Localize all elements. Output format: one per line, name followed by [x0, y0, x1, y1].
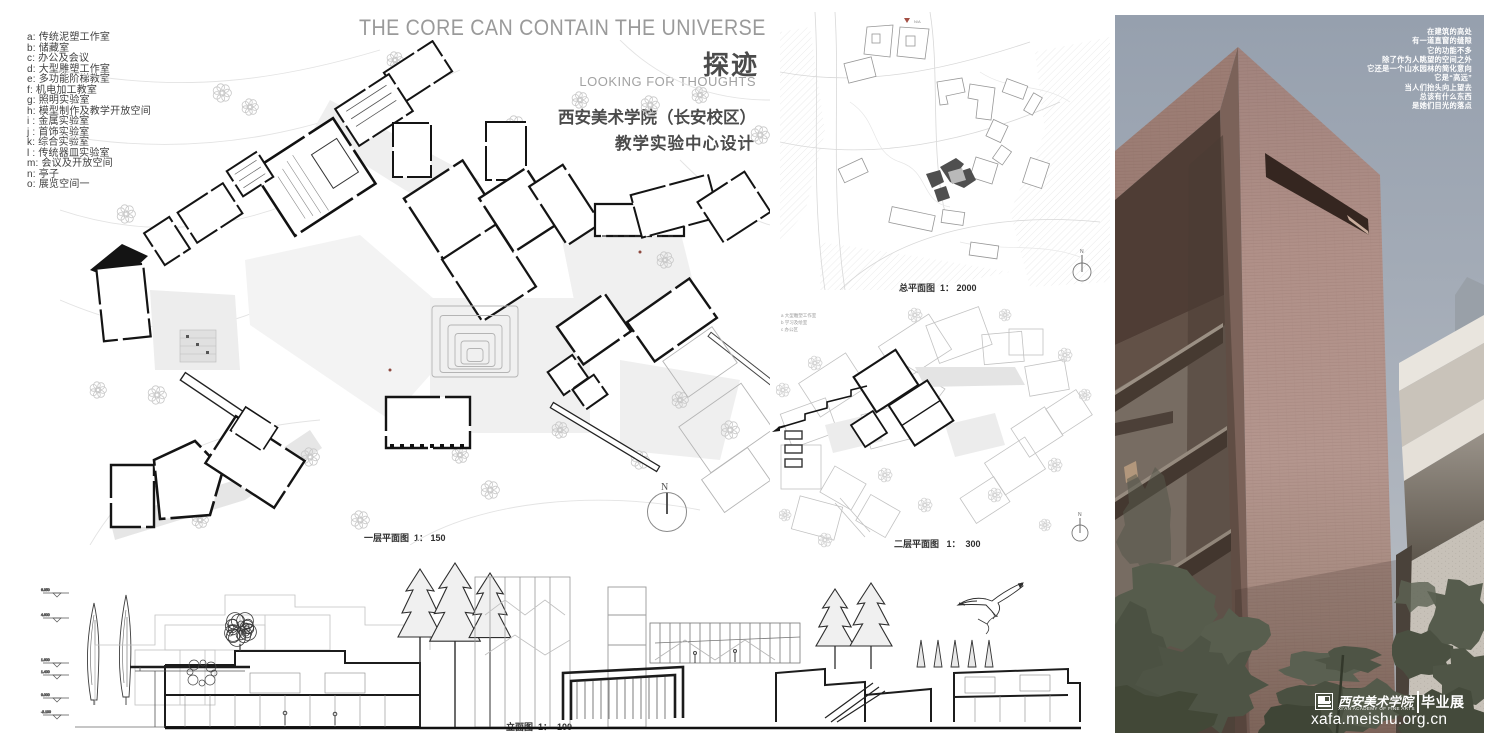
svg-text:1.400: 1.400	[41, 670, 50, 674]
svg-text:N: N	[1078, 512, 1082, 518]
svg-text:6.350: 6.350	[41, 588, 50, 592]
svg-text:-2.100: -2.100	[41, 710, 51, 714]
svg-text:c 办公区: c 办公区	[781, 326, 799, 333]
svg-text:0.000: 0.000	[41, 693, 50, 697]
svg-text:N: N	[661, 482, 668, 493]
svg-text:N/A: N/A	[914, 19, 921, 24]
svg-text:b 学习及绘室: b 学习及绘室	[781, 319, 808, 326]
svg-text:1.600: 1.600	[41, 658, 50, 662]
svg-text:4.600: 4.600	[41, 613, 50, 617]
svg-text:a 大型雕塑工作室: a 大型雕塑工作室	[781, 312, 817, 319]
svg-text:N: N	[1080, 249, 1084, 255]
